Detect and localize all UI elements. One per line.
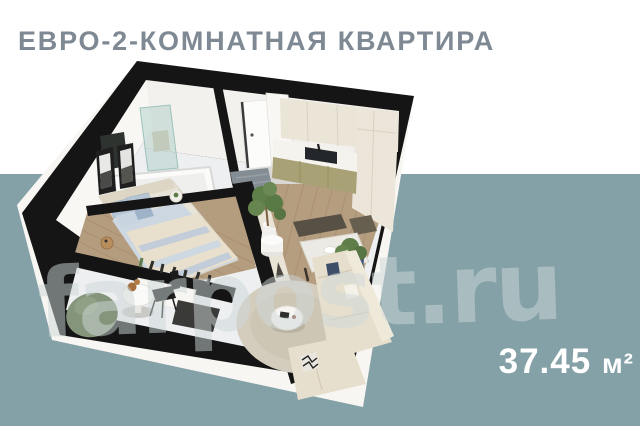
area-unit: м²: [602, 348, 634, 379]
area-label: 37.45 м²: [499, 342, 634, 382]
area-value: 37.45: [499, 342, 592, 381]
listing-image: { "header": { "title": "ЕВРО-2-КОМНАТНАЯ…: [0, 0, 640, 426]
